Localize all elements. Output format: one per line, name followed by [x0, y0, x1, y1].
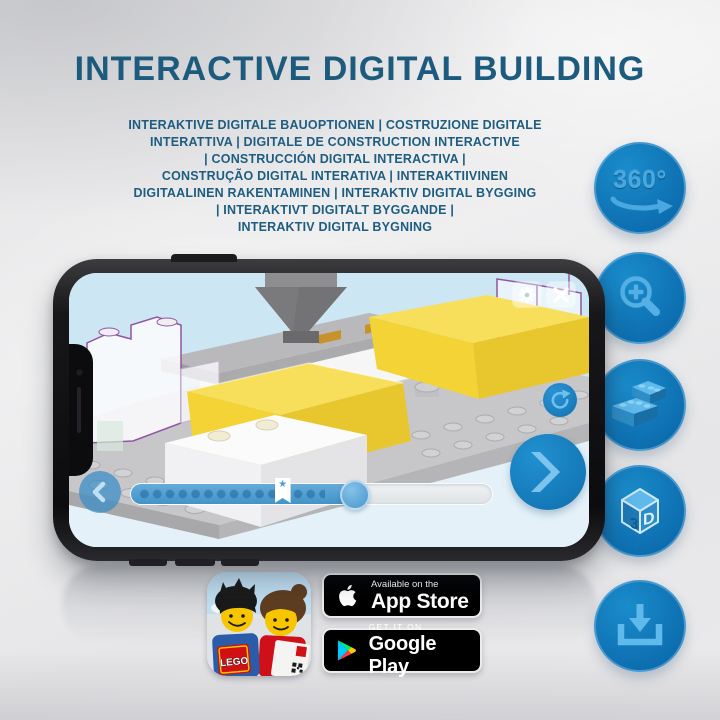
3d-cube-icon: 3 D [611, 483, 669, 539]
feature-360-badge: 360° [594, 142, 686, 234]
subtitle-line: | INTERAKTIVT DIGITALT BYGGANDE | [70, 202, 600, 219]
star-icon: ★ [278, 478, 287, 492]
close-icon [551, 285, 571, 305]
google-play-icon [335, 637, 359, 664]
gear-icon [516, 284, 538, 306]
progress-step-dots [138, 488, 325, 500]
zoom-in-icon [612, 270, 668, 326]
lego-minifigures-art: LEGO [207, 572, 311, 676]
multilingual-subtitle: INTERAKTIVE DIGITALE BAUOPTIONEN | COSTR… [70, 117, 600, 236]
google-play-badge[interactable]: GET IT ON Google Play [322, 628, 482, 673]
apple-icon [335, 580, 361, 611]
phone-mute-switch [129, 559, 167, 566]
app-store-badge[interactable]: Available on the App Store [322, 573, 482, 618]
cube-face-d: D [643, 509, 655, 530]
app-screen: ★ [69, 273, 589, 547]
lego-bricks-icon [610, 379, 670, 431]
subtitle-line: INTERAKTIV DIGITAL BYGNING [70, 219, 600, 236]
smartphone: ★ [53, 259, 605, 561]
feature-zoom-badge [594, 252, 686, 344]
earpiece-speaker [77, 387, 81, 433]
close-button[interactable] [547, 282, 575, 307]
subtitle-line: INTERATTIVA | DIGITALE DE CONSTRUCTION I… [70, 134, 600, 151]
previous-step-button[interactable] [79, 471, 121, 513]
360-arrow-icon [607, 195, 673, 215]
build-progress-slider[interactable]: ★ [130, 483, 493, 505]
subtitle-line: | CONSTRUCCIÓN DIGITAL INTERACTIVA | [70, 151, 600, 168]
feature-download-badge [594, 580, 686, 672]
google-play-tagline: GET IT ON [369, 622, 480, 633]
360-rotation-icon: 360° [613, 166, 667, 195]
slider-handle[interactable] [340, 480, 370, 510]
phone-volume-down-button [221, 559, 259, 566]
download-icon [613, 600, 667, 652]
subtitle-line: INTERAKTIVE DIGITALE BAUOPTIONEN | COSTR… [70, 117, 600, 134]
rotate-view-button[interactable] [543, 383, 577, 417]
app-store-tagline: Available on the [371, 579, 469, 590]
app-store-name: App Store [371, 590, 469, 613]
chevron-left-icon [87, 479, 113, 505]
page-title: INTERACTIVE DIGITAL BUILDING [0, 50, 720, 89]
cube-face-3: 3 [630, 515, 638, 534]
subtitle-line: CONSTRUÇÃO DIGITAL INTERATIVA | INTERAKT… [70, 168, 600, 185]
google-play-name: Google Play [369, 633, 480, 679]
next-step-button[interactable] [510, 434, 586, 510]
feature-bricks-badge [594, 359, 686, 451]
progress-fill [131, 484, 355, 504]
feature-3d-badge: 3 D [594, 465, 686, 557]
chevron-right-icon [510, 434, 586, 510]
front-camera [77, 370, 82, 375]
phone-notch [69, 344, 93, 476]
marketing-page: INTERACTIVE DIGITAL BUILDING INTERAKTIVE… [0, 0, 720, 720]
settings-button[interactable] [513, 282, 541, 307]
phone-power-button [171, 254, 237, 262]
lego-app-icon[interactable]: LEGO [207, 572, 311, 676]
phone-volume-up-button [175, 559, 215, 566]
subtitle-line: DIGITAALINEN RAKENTAMINEN | INTERAKTIV D… [70, 185, 600, 202]
rotate-icon [548, 388, 572, 412]
